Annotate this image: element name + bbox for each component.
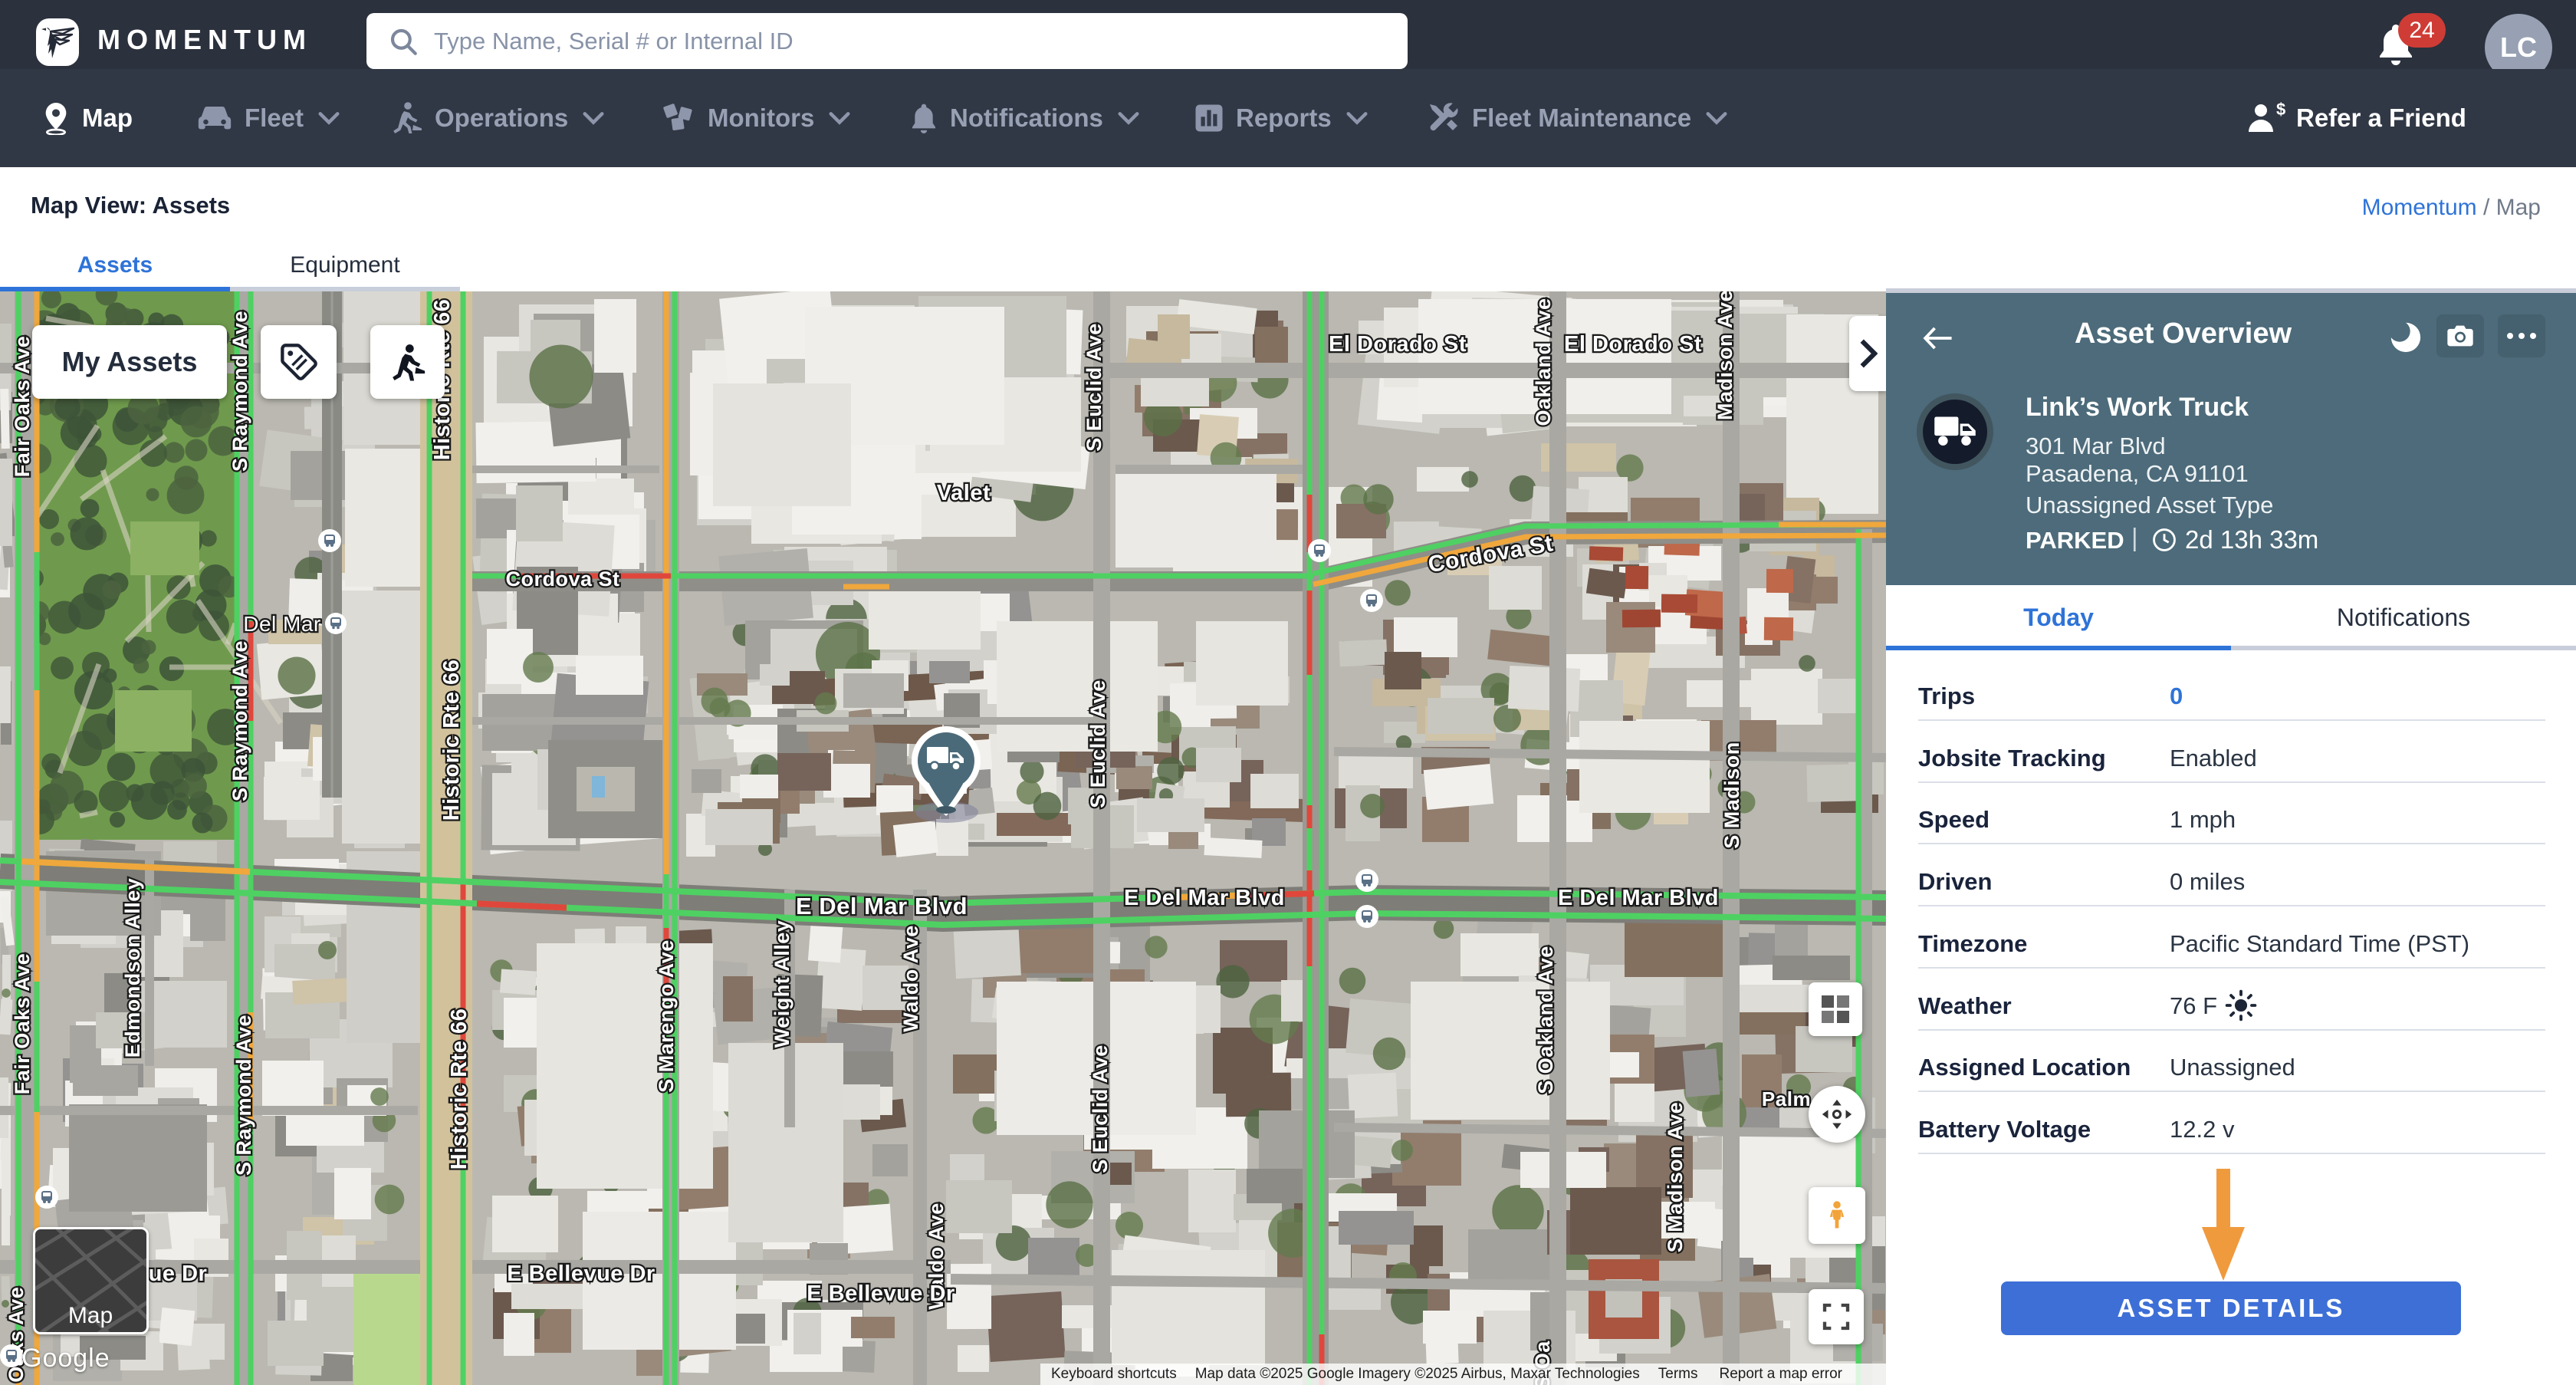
svg-text:Palm: Palm xyxy=(1762,1087,1811,1110)
svg-text:Fair Oaks Ave: Fair Oaks Ave xyxy=(11,336,34,478)
svg-text:El Dorado St: El Dorado St xyxy=(1329,332,1467,357)
svg-text:S Euclid Ave: S Euclid Ave xyxy=(1089,1045,1112,1173)
svg-text:S Madison: S Madison xyxy=(1720,742,1743,849)
svg-text:$: $ xyxy=(2276,101,2285,119)
svg-text:S Raymond Ave: S Raymond Ave xyxy=(228,311,251,472)
svg-text:Waldo Ave: Waldo Ave xyxy=(899,925,922,1032)
svg-text:Cordova St: Cordova St xyxy=(505,567,619,591)
svg-text:Madison Ave: Madison Ave xyxy=(1714,291,1737,420)
svg-text:S Euclid Ave: S Euclid Ave xyxy=(1086,679,1109,808)
svg-text:E Bellevue Dr: E Bellevue Dr xyxy=(507,1262,655,1286)
svg-text:S Raymond Ave: S Raymond Ave xyxy=(228,640,251,801)
svg-text:S Euclid Ave: S Euclid Ave xyxy=(1083,323,1106,452)
svg-text:E Del Mar Blvd: E Del Mar Blvd xyxy=(1124,886,1285,910)
svg-text:Del Mar: Del Mar xyxy=(243,612,321,636)
svg-text:S Oakland Ave: S Oakland Ave xyxy=(1534,946,1557,1094)
svg-text:Historic Rte 66: Historic Rte 66 xyxy=(447,1008,472,1170)
svg-text:S Raymond Ave: S Raymond Ave xyxy=(232,1015,255,1176)
svg-text:E Del Mar Blvd: E Del Mar Blvd xyxy=(1558,886,1719,910)
svg-text:E Del Mar Blvd: E Del Mar Blvd xyxy=(796,893,968,919)
svg-text:Map: Map xyxy=(68,1303,113,1328)
svg-text:Valet: Valet xyxy=(937,481,991,505)
svg-text:El Dorado St: El Dorado St xyxy=(1564,332,1702,357)
svg-text:Fair Oaks Ave: Fair Oaks Ave xyxy=(11,953,34,1095)
svg-text:Weight Alley: Weight Alley xyxy=(770,920,793,1048)
svg-text:Edmondson Alley: Edmondson Alley xyxy=(121,878,144,1058)
svg-text:ue Dr: ue Dr xyxy=(149,1262,208,1286)
svg-text:S Marengo Ave: S Marengo Ave xyxy=(655,939,678,1093)
svg-text:S Madison Ave: S Madison Ave xyxy=(1664,1102,1687,1253)
svg-text:Oakland Ave: Oakland Ave xyxy=(1532,298,1555,426)
svg-text:Historic Rte 66: Historic Rte 66 xyxy=(439,660,464,821)
svg-text:E Bellevue Dr: E Bellevue Dr xyxy=(807,1281,955,1306)
